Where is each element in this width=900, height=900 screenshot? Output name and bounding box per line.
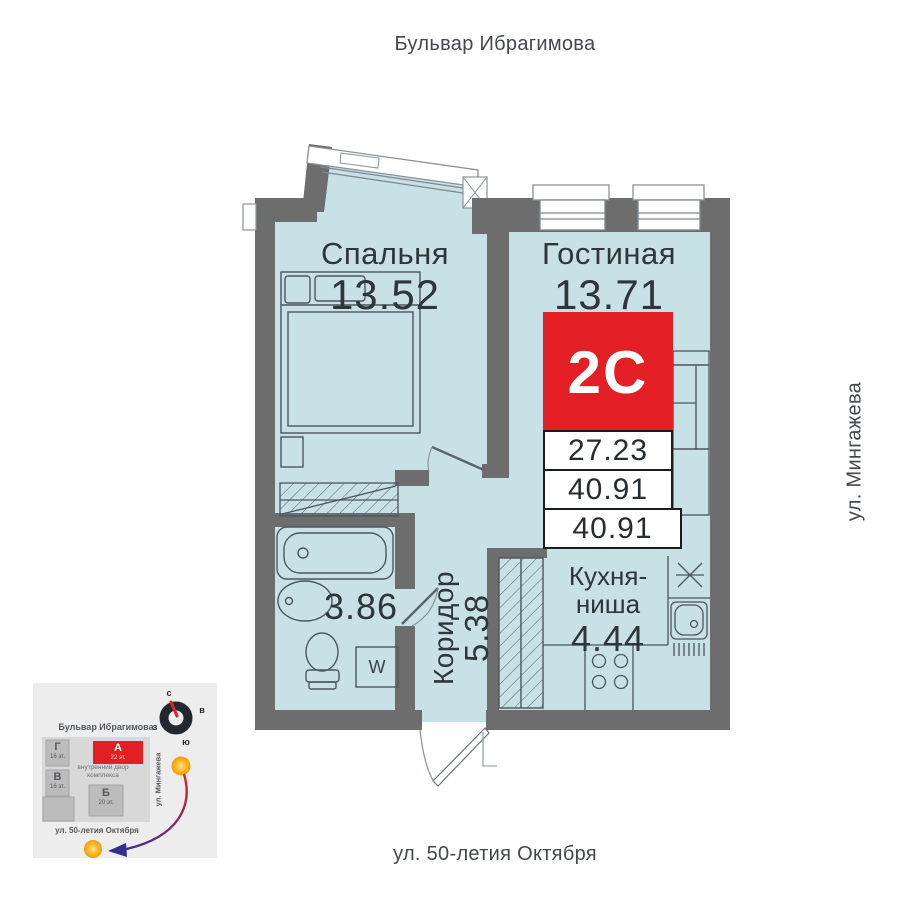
bathroom-area: 3.86 (305, 588, 417, 627)
bedroom-label: Спальня 13.52 (297, 237, 473, 318)
minimap-street-bottom: ул. 50-летия Октября (42, 826, 152, 835)
minimap-building-a: А 22 эт. (93, 743, 143, 761)
kitchen-area: 4.44 (546, 620, 670, 659)
corridor-wardrobe (499, 558, 543, 708)
compass-west: з (150, 722, 160, 732)
apartment-type-badge: 2С (543, 312, 673, 432)
compass-east: в (197, 705, 207, 715)
living-label: Гостиная 13.71 (523, 237, 695, 318)
bedroom-area: 13.52 (297, 272, 473, 317)
street-label-bottom: ул. 50-летия Октября (345, 843, 645, 866)
wall-notch (243, 204, 256, 230)
kitchen-label: Кухня- ниша 4.44 (546, 562, 670, 659)
minimap-street-top: Бульвар Ибрагимова (50, 722, 162, 732)
compass-icon (164, 702, 188, 730)
washer-label: W (356, 647, 398, 687)
entry-door (420, 728, 497, 786)
area-row-total-with-balcony: 40.91 (543, 508, 682, 549)
floorplan-canvas: Бульвар Ибрагимова ул. Мингажева ул. 50-… (0, 0, 900, 900)
corridor-area: 5.38 (459, 525, 495, 731)
area-row-living-sum: 27.23 (543, 430, 673, 471)
minimap-building-g: Г 16 эт. (46, 742, 69, 760)
corridor-name: Коридор (429, 525, 459, 731)
minimap-building-b: Б 20 эт. (89, 788, 123, 806)
sun-icon-2 (84, 840, 102, 858)
bedroom-name: Спальня (297, 237, 473, 270)
street-label-top: Бульвар Ибрагимова (345, 33, 645, 56)
living-name: Гостиная (523, 237, 695, 270)
kitchen-name-line2: ниша (546, 590, 670, 618)
sun-icon (172, 757, 191, 776)
compass-north: с (164, 688, 174, 698)
bedroom-wardrobe (280, 483, 398, 516)
street-label-right: ул. Мингажева (844, 362, 867, 542)
area-row-total: 40.91 (543, 469, 673, 510)
corridor-label: Коридор 5.38 (429, 525, 489, 731)
minimap-street-right: ул. Мингажева (154, 744, 163, 816)
minimap-building-v: В 16 эт. (46, 772, 69, 790)
compass-south: ю (181, 737, 191, 747)
kitchen-name-line1: Кухня- (546, 562, 670, 590)
minimap-courtyard-label: внутренний двор комплекса (70, 765, 136, 779)
